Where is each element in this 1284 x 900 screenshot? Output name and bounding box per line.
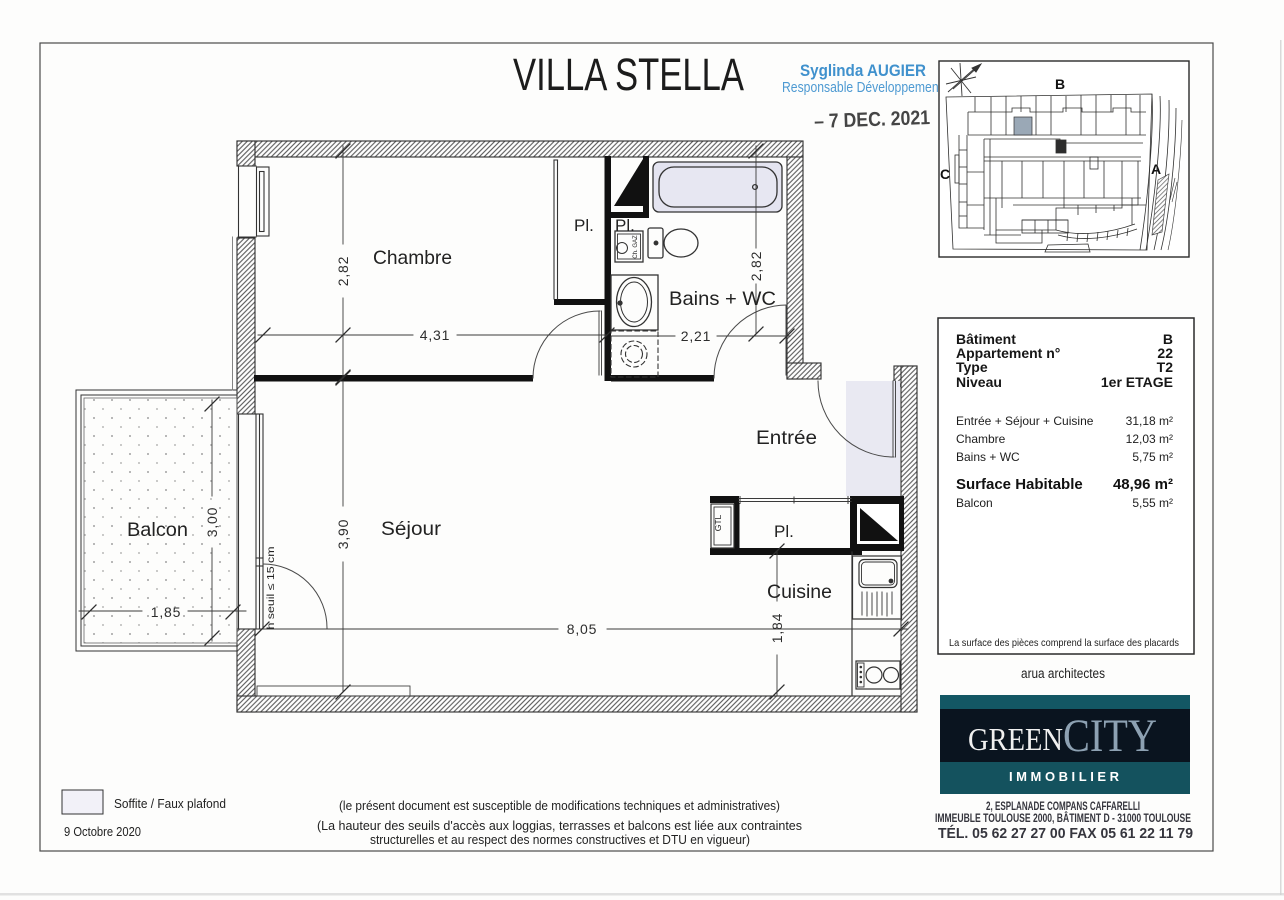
svg-text:Syglinda AUGIER: Syglinda AUGIER <box>800 61 926 80</box>
svg-text:3,90: 3,90 <box>335 519 351 549</box>
svg-text:IMMOBILIER: IMMOBILIER <box>1009 769 1120 784</box>
svg-text:GTL: GTL <box>713 514 723 531</box>
svg-text:T2: T2 <box>1157 359 1174 375</box>
svg-text:5,55 m²: 5,55 m² <box>1132 496 1173 510</box>
svg-text:Pl.: Pl. <box>615 216 635 235</box>
svg-text:2,82: 2,82 <box>748 251 764 281</box>
svg-text:arua architectes: arua architectes <box>1021 666 1105 681</box>
svg-text:31,18 m²: 31,18 m² <box>1126 414 1173 428</box>
svg-text:(le présent document est susce: (le présent document est susceptible de … <box>339 799 780 813</box>
svg-text:IMMEUBLE TOULOUSE 2000, BÂTIME: IMMEUBLE TOULOUSE 2000, BÂTIMENT D - 310… <box>935 810 1191 825</box>
svg-text:Bains + WC: Bains + WC <box>669 288 776 310</box>
svg-text:Type: Type <box>956 359 988 375</box>
svg-text:9 Octobre 2020: 9 Octobre 2020 <box>64 825 141 839</box>
svg-text:3,00: 3,00 <box>204 507 220 537</box>
svg-text:Entrée: Entrée <box>756 427 817 449</box>
svg-text:C: C <box>940 166 950 182</box>
svg-text:Bains + WC: Bains + WC <box>956 450 1020 464</box>
svg-text:CITY: CITY <box>1063 710 1157 762</box>
svg-text:Pl.: Pl. <box>774 522 794 541</box>
svg-text:B: B <box>1055 76 1065 92</box>
svg-text:h seuil ≤ 15 cm: h seuil ≤ 15 cm <box>266 547 277 630</box>
svg-text:(La hauteur des seuils d'accès: (La hauteur des seuils d'accès aux loggi… <box>317 819 802 833</box>
svg-text:Balcon: Balcon <box>127 519 188 541</box>
svg-text:Chambre: Chambre <box>373 247 452 269</box>
svg-text:48,96 m²: 48,96 m² <box>1113 476 1173 493</box>
svg-text:Entrée + Séjour + Cuisine: Entrée + Séjour + Cuisine <box>956 414 1094 428</box>
svg-text:GREEN: GREEN <box>968 721 1063 757</box>
svg-text:2,82: 2,82 <box>335 256 351 286</box>
svg-text:structurelles et au respect de: structurelles et au respect des normes c… <box>370 833 750 847</box>
svg-text:1,84: 1,84 <box>769 613 785 643</box>
svg-text:Niveau: Niveau <box>956 374 1002 390</box>
svg-text:– 7 DEC. 2021: – 7 DEC. 2021 <box>814 107 931 133</box>
svg-text:Cuisine: Cuisine <box>767 581 832 603</box>
svg-text:Balcon: Balcon <box>956 496 993 510</box>
svg-text:Chambre: Chambre <box>956 432 1006 446</box>
svg-text:2,21: 2,21 <box>681 328 711 344</box>
svg-text:5,75 m²: 5,75 m² <box>1132 450 1173 464</box>
svg-text:Soffite / Faux plafond: Soffite / Faux plafond <box>114 797 226 811</box>
svg-text:12,03 m²: 12,03 m² <box>1126 432 1173 446</box>
svg-text:TÉL. 05 62 27 27 00 FAX 05 61: TÉL. 05 62 27 27 00 FAX 05 61 22 11 79 <box>938 825 1193 842</box>
svg-text:Responsable Développement: Responsable Développement <box>782 80 942 96</box>
svg-text:1er ETAGE: 1er ETAGE <box>1101 374 1173 390</box>
svg-text:La surface des pièces comprend: La surface des pièces comprend la surfac… <box>949 638 1179 649</box>
svg-text:1,85: 1,85 <box>151 604 181 620</box>
svg-text:Séjour: Séjour <box>381 518 442 540</box>
svg-text:VILLA STELLA: VILLA STELLA <box>513 49 744 100</box>
svg-text:Pl.: Pl. <box>574 216 594 235</box>
svg-text:8,05: 8,05 <box>567 621 597 637</box>
svg-text:Surface Habitable: Surface Habitable <box>956 476 1083 493</box>
svg-text:Ch. GAZ: Ch. GAZ <box>633 235 639 259</box>
svg-text:4,31: 4,31 <box>420 327 450 343</box>
